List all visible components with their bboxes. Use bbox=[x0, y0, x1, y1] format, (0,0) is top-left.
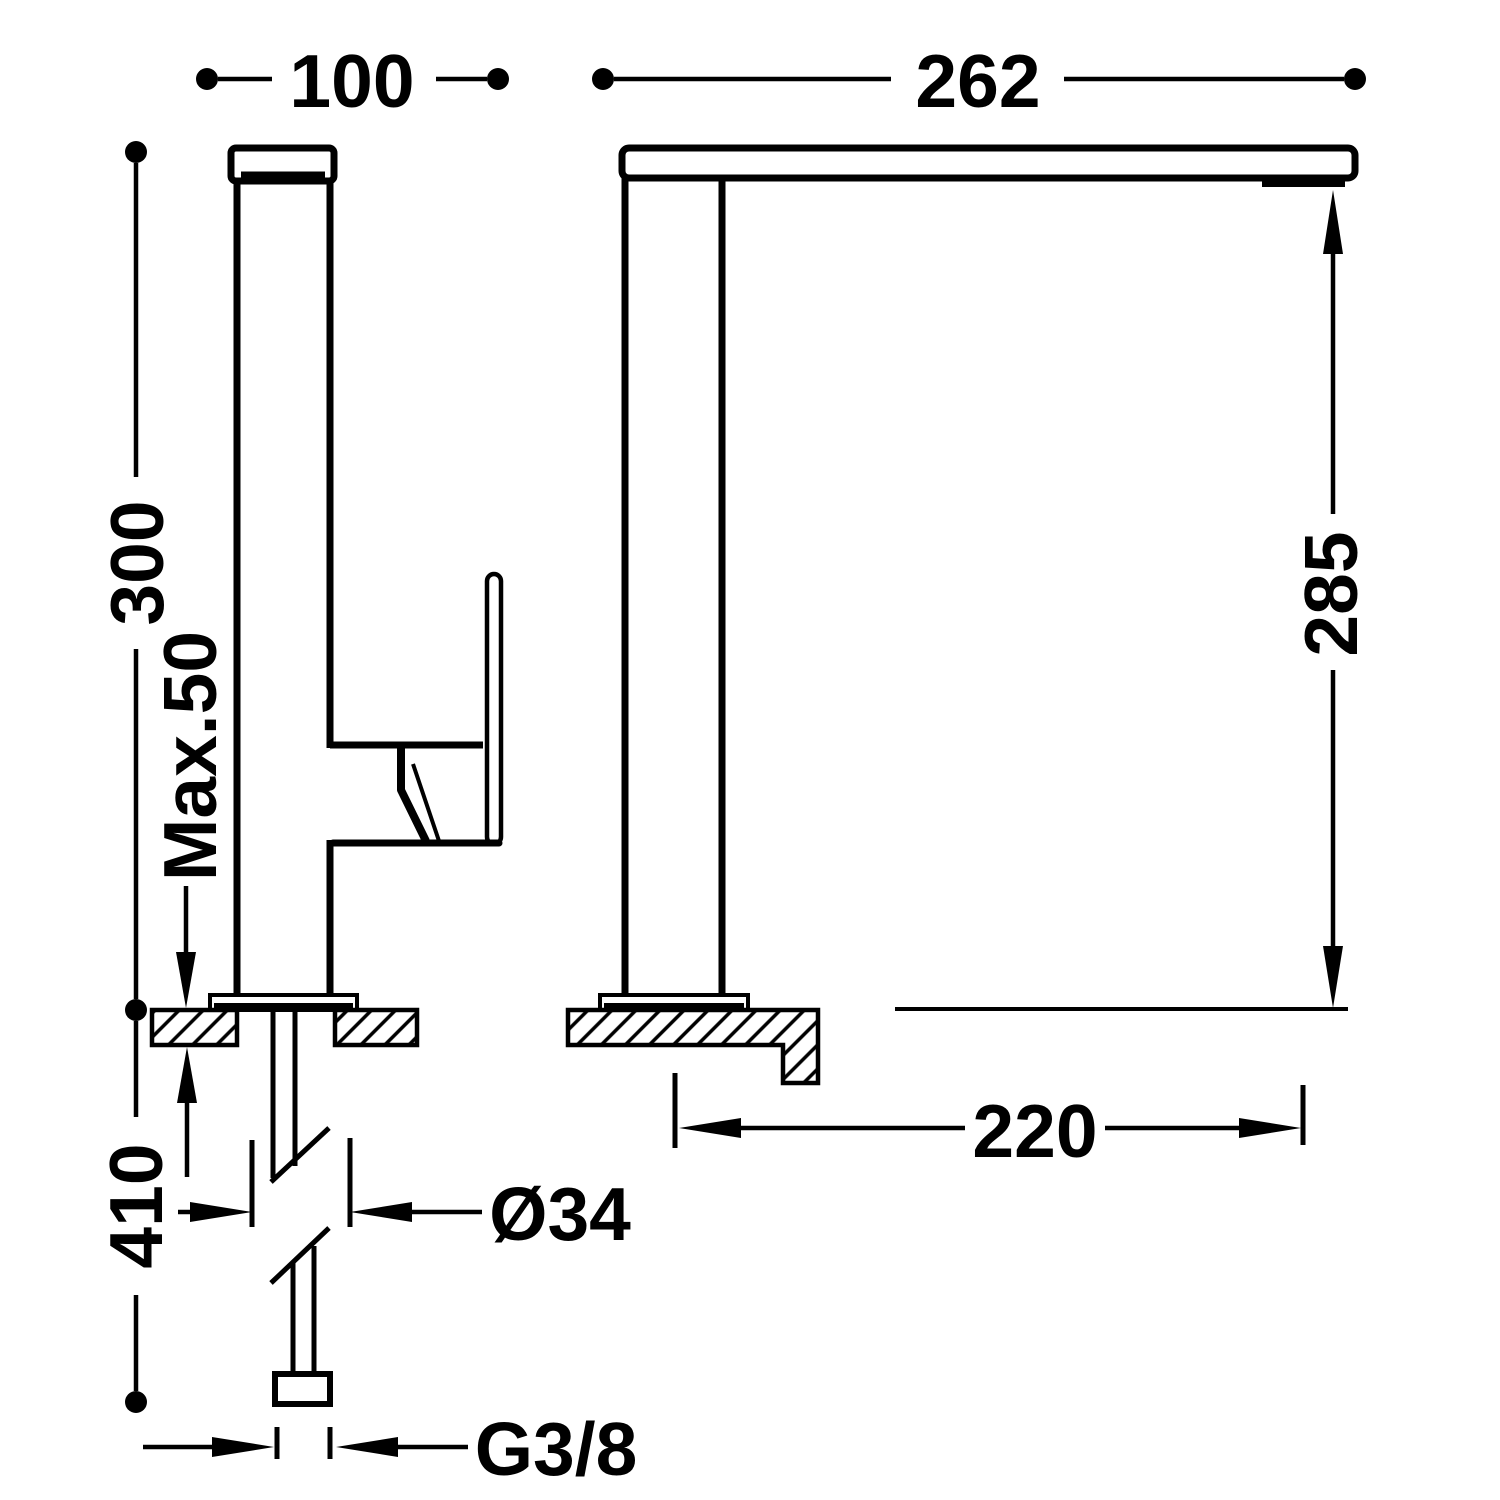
dim-label-front-width: 100 bbox=[289, 39, 414, 123]
dim-thread: G3/8 bbox=[143, 1407, 637, 1491]
dim-body-height: 300 bbox=[95, 141, 179, 1021]
dim-dot bbox=[196, 68, 218, 90]
arrowhead-right bbox=[190, 1202, 252, 1222]
dim-hose-drop: 410 bbox=[94, 1021, 178, 1413]
dim-label-spout-length: 262 bbox=[915, 39, 1040, 123]
break-diagonal-upper bbox=[271, 1128, 329, 1182]
arrowhead-right bbox=[1239, 1118, 1301, 1138]
dim-dot bbox=[125, 1391, 147, 1413]
dim-label-spout-reach: 220 bbox=[972, 1089, 1097, 1173]
aerator bbox=[1262, 175, 1345, 187]
dim-dot bbox=[125, 141, 147, 163]
counter-edge-section bbox=[568, 1010, 818, 1083]
break-diagonal-lower bbox=[271, 1228, 329, 1283]
technical-drawing: 100 262 300 Max.50 bbox=[0, 0, 1500, 1500]
hose-fitting bbox=[275, 1374, 330, 1404]
spout-outline bbox=[622, 148, 1355, 178]
arrowhead-up bbox=[177, 1047, 197, 1103]
arrowhead-down bbox=[1323, 946, 1343, 1008]
counter-section-left bbox=[152, 1010, 237, 1045]
dim-outlet-height: 285 bbox=[1289, 190, 1373, 1008]
dim-label-body-height: 300 bbox=[95, 500, 179, 625]
dim-max-deck: Max.50 bbox=[148, 631, 232, 1177]
dimensions: 100 262 300 Max.50 bbox=[94, 39, 1373, 1491]
dim-dot bbox=[1344, 68, 1366, 90]
arrowhead-left bbox=[679, 1118, 741, 1138]
dim-front-width: 100 bbox=[196, 39, 509, 123]
dim-label-hose-drop: 410 bbox=[94, 1143, 178, 1268]
front-view bbox=[568, 148, 1355, 1083]
counter-section-right bbox=[335, 1010, 417, 1045]
arrowhead-down bbox=[176, 952, 196, 1008]
dim-dot bbox=[592, 68, 614, 90]
dim-label-body-diameter: Ø34 bbox=[489, 1172, 631, 1256]
handle-lever bbox=[487, 574, 501, 844]
dim-spout-length: 262 bbox=[592, 39, 1366, 123]
dim-dot bbox=[487, 68, 509, 90]
arrowhead-left bbox=[350, 1202, 412, 1222]
arrowhead-up bbox=[1323, 190, 1343, 254]
dim-dot bbox=[125, 999, 147, 1021]
dim-spout-reach: 220 bbox=[675, 1073, 1303, 1173]
arrowhead-left bbox=[336, 1437, 398, 1457]
dim-label-outlet-height: 285 bbox=[1289, 531, 1373, 656]
dim-label-max-deck: Max.50 bbox=[148, 631, 232, 881]
drawing-canvas: 100 262 300 Max.50 bbox=[0, 0, 1500, 1500]
dim-label-thread: G3/8 bbox=[475, 1407, 638, 1491]
arrowhead-right bbox=[212, 1437, 274, 1457]
dim-body-diameter: Ø34 bbox=[178, 1172, 631, 1256]
